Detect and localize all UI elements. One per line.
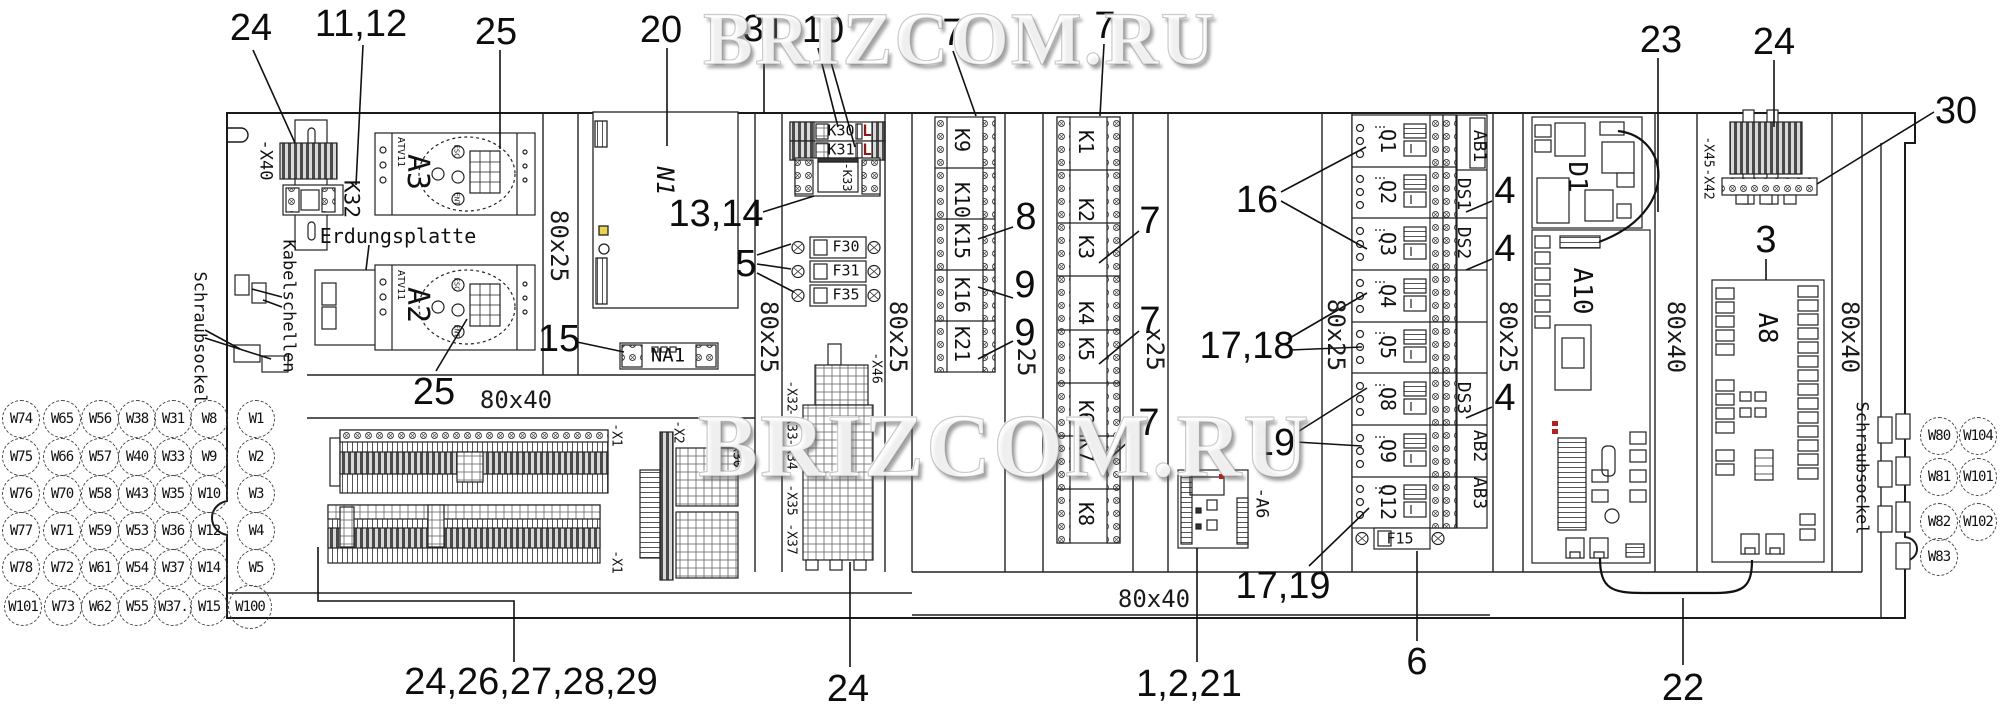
component-label: D1 <box>1564 161 1590 192</box>
callout-number: 1,2,21 <box>1136 665 1242 703</box>
wire-tag-circle: W1 <box>237 400 275 438</box>
wire-tag-circle: W33 <box>154 438 192 476</box>
wire-tag-circle: W81 <box>1920 458 1958 496</box>
component-label: A10 <box>1569 268 1595 315</box>
callout-number: 19 <box>1253 424 1295 462</box>
wire-tag-circle: W73 <box>44 588 82 626</box>
wire-tag-circle: W55 <box>118 588 156 626</box>
callout-number: 4 <box>1494 230 1515 268</box>
component-label: AB3 <box>1470 477 1488 510</box>
component-label: K1 <box>1076 130 1096 154</box>
component-label: A8 <box>1754 312 1780 343</box>
wire-tag-circle: W59 <box>81 512 119 550</box>
component-label: ESC <box>453 278 460 291</box>
component-label: -X30 <box>731 436 744 467</box>
callout-number: 9 <box>1014 266 1035 304</box>
callout-number: 17,18 <box>1199 327 1294 365</box>
component-label: K6 <box>1076 400 1096 424</box>
component-label: A2 <box>402 287 432 323</box>
callout-number: 9 <box>1014 314 1035 352</box>
wire-tag-circle: W82 <box>1920 503 1958 541</box>
component-label: -X1 <box>610 550 623 573</box>
duct-size-label: 80x40 <box>1838 301 1862 373</box>
duct-size-label: 80x25 <box>1496 301 1520 373</box>
component-label: -X37 <box>785 523 798 554</box>
electrical-cabinet-layout-drawing: 2411,12252031107723243013,14515899777161… <box>0 0 2000 714</box>
component-label: Q3 <box>1378 232 1398 256</box>
component-label: ESC <box>453 145 460 158</box>
callout-number: 24 <box>230 9 272 47</box>
wire-tag-circle: W62 <box>81 588 119 626</box>
wire-tag-circle: W72 <box>43 549 81 587</box>
component-label: -X46 <box>870 352 883 383</box>
wire-tag-circle: W31 <box>154 400 192 438</box>
wire-tag-circle: W77 <box>2 512 40 550</box>
component-label: K3 <box>1076 235 1096 259</box>
callout-number: 23 <box>1640 21 1682 59</box>
component-label: Q8 <box>1378 387 1398 411</box>
component-label: Q5 <box>1378 335 1398 359</box>
callout-number: 10 <box>802 11 844 49</box>
component-label: F15 <box>1386 532 1413 547</box>
callout-number: 25 <box>413 373 455 411</box>
component-label: DS2 <box>1454 227 1472 260</box>
callout-number: 4 <box>1494 379 1515 417</box>
callout-number: 13,14 <box>668 195 763 233</box>
callout-number: 8 <box>1015 198 1036 236</box>
component-label: K10 <box>952 182 972 218</box>
component-label: -A6 <box>1253 488 1270 519</box>
wire-tag-circle: W5 <box>237 549 275 587</box>
component-label: K15 <box>952 223 972 259</box>
wire-tag-circle: W53 <box>118 512 156 550</box>
component-label: Schraubsockel <box>191 271 208 404</box>
component-label: K16 <box>952 277 972 313</box>
wire-tag-circle: W56 <box>81 400 119 438</box>
duct-size-label: 80x25 <box>757 301 781 373</box>
callout-number: 25 <box>475 13 517 51</box>
component-label: AB1 <box>1470 130 1488 163</box>
component-label: -X34 <box>785 438 798 469</box>
duct-size-label: 80x40 <box>1664 301 1688 373</box>
callout-number: 30 <box>1935 92 1977 130</box>
wire-tag-circle: W54 <box>118 549 156 587</box>
duct-size-label: 80x40 <box>1118 587 1190 611</box>
component-label: -X45 <box>1702 136 1715 167</box>
wire-tag-circle: W40 <box>118 438 156 476</box>
callout-number: 7 <box>942 14 963 52</box>
component-label: -X33 <box>785 408 798 439</box>
callout-number: 24 <box>1753 23 1795 61</box>
component-label: Q4 <box>1378 284 1398 308</box>
component-label: F35 <box>832 288 859 303</box>
component-label: K5 <box>1076 337 1096 361</box>
component-label: K9 <box>952 128 972 152</box>
component-label: Q2 <box>1378 180 1398 204</box>
wire-tag-circle: W58 <box>81 475 119 513</box>
wire-tag-circle: W37 <box>154 549 192 587</box>
wire-tag-circle: W80 <box>1920 417 1958 455</box>
callout-number: 24 <box>827 670 869 708</box>
component-label: K8 <box>1076 502 1096 526</box>
wire-tag-circle: W102 <box>1959 503 1997 541</box>
wire-tag-circle: W10 <box>190 475 228 513</box>
callout-number: 5 <box>735 245 756 283</box>
component-label: -K33 <box>841 163 853 192</box>
wire-tag-circle: W78 <box>2 549 40 587</box>
callout-number: 7 <box>1138 404 1159 442</box>
wire-tag-circle: W101 <box>4 588 42 626</box>
wire-tag-circle: W8 <box>190 400 228 438</box>
component-label: N1 <box>653 167 677 196</box>
callout-number: 7 <box>1094 7 1115 45</box>
callout-number: 17,19 <box>1235 567 1330 605</box>
component-label: Erdungsplatte <box>320 226 477 246</box>
wire-tag-circle: W66 <box>43 438 81 476</box>
callout-number: 22 <box>1662 669 1704 707</box>
component-label: Q1 <box>1378 129 1398 153</box>
wire-tag-circle: W83 <box>1920 538 1958 576</box>
callout-number: 31 <box>743 10 785 48</box>
wire-tag-circle: W61 <box>81 549 119 587</box>
duct-size-label: 80x25 <box>1324 299 1348 371</box>
callout-number: 16 <box>1236 181 1278 219</box>
wire-tag-circle: W36 <box>154 512 192 550</box>
wire-tag-circle: W76 <box>2 475 40 513</box>
wire-tag-circle: W101 <box>1959 458 1997 496</box>
duct-size-label: 80x40 <box>480 388 552 412</box>
callout-number: 11,12 <box>315 5 407 43</box>
callout-number: 24,26,27,28,29 <box>404 663 658 701</box>
duct-size-label: 80x25 <box>886 301 910 373</box>
wire-tag-circle: W2 <box>237 438 275 476</box>
component-label: Q9 <box>1378 439 1398 463</box>
component-label: A3 <box>402 154 432 190</box>
component-label: F30 <box>832 240 859 255</box>
wire-tag-circle: W71 <box>43 512 81 550</box>
labels-layer: 2411,12252031107723243013,14515899777161… <box>0 0 2000 714</box>
wire-tag-circle: W9 <box>190 438 228 476</box>
component-label: -X32 <box>785 380 798 411</box>
callout-number: 3 <box>1755 221 1776 259</box>
component-label: K2 <box>1076 198 1096 222</box>
component-label: Schraubsockel <box>1853 401 1870 534</box>
callout-number: 7 <box>1139 202 1160 240</box>
component-label: F31 <box>832 264 859 279</box>
component-label: -X40 <box>257 140 274 181</box>
duct-size-label: 80x25 <box>547 210 571 282</box>
wire-tag-circle: W35 <box>154 475 192 513</box>
wire-tag-circle: W43 <box>118 475 156 513</box>
component-label: K32 <box>341 180 362 218</box>
callout-number: 20 <box>640 11 682 49</box>
callout-number: 15 <box>538 320 580 358</box>
wire-tag-circle: W15 <box>190 588 228 626</box>
component-label: -X2 <box>672 420 685 443</box>
wire-tag-circle: W104 <box>1959 417 1997 455</box>
duct-size-label: x25 <box>1143 327 1167 370</box>
component-label: -X1 <box>610 423 623 446</box>
component-label: DS3 <box>1454 382 1472 415</box>
wire-tag-circle: W70 <box>43 475 81 513</box>
component-label: K7 <box>1076 438 1096 462</box>
component-label: DS1 <box>1454 178 1472 211</box>
callout-number: 4 <box>1494 172 1515 210</box>
component-label: ENT <box>453 325 460 338</box>
component-label: ENT <box>453 193 460 206</box>
duct-size-label: 25 <box>1014 348 1038 377</box>
component-label: Q12 <box>1378 484 1398 520</box>
component-label: L <box>862 123 872 139</box>
component-label: -X35 <box>785 484 798 515</box>
component-label: NA1 <box>651 347 685 366</box>
callout-number: 6 <box>1406 643 1427 681</box>
wire-tag-circle: W14 <box>190 549 228 587</box>
wire-tag-circle: W3 <box>237 475 275 513</box>
wire-tag-circle: W75 <box>2 438 40 476</box>
component-label: AB2 <box>1470 430 1488 463</box>
component-label: K4 <box>1076 301 1096 325</box>
wire-tag-circle: W37. <box>154 588 192 626</box>
component-label: K21 <box>952 326 972 362</box>
wire-tag-circle: W57 <box>81 438 119 476</box>
wire-tag-circle: W38 <box>118 400 156 438</box>
component-label: -X42 <box>1702 168 1715 199</box>
component-label: K30 <box>827 124 854 139</box>
wire-tag-circle: W100 <box>228 585 272 629</box>
wire-tag-circle: W4 <box>237 512 275 550</box>
wire-tag-circle: W12 <box>190 512 228 550</box>
component-label: Kabelschellen <box>280 239 297 372</box>
wire-tag-circle: W74 <box>2 400 40 438</box>
component-label: L <box>862 142 872 158</box>
wire-tag-circle: W65 <box>43 400 81 438</box>
component-label: K31 <box>827 143 854 158</box>
